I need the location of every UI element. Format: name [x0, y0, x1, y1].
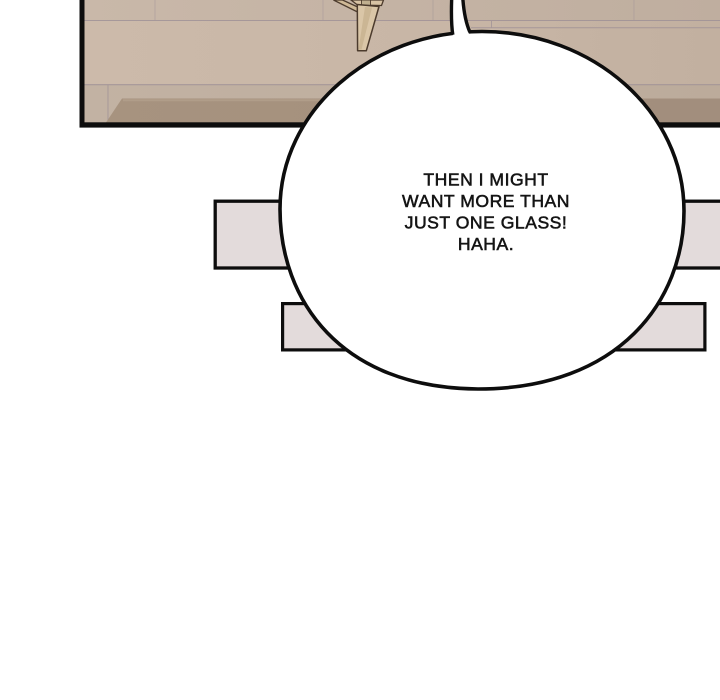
svg-text:WANT MORE THAN: WANT MORE THAN: [402, 191, 570, 211]
svg-text:JUST ONE GLASS!: JUST ONE GLASS!: [405, 213, 568, 233]
svg-text:THEN I MIGHT: THEN I MIGHT: [423, 170, 548, 190]
svg-text:HAHA.: HAHA.: [458, 234, 514, 254]
